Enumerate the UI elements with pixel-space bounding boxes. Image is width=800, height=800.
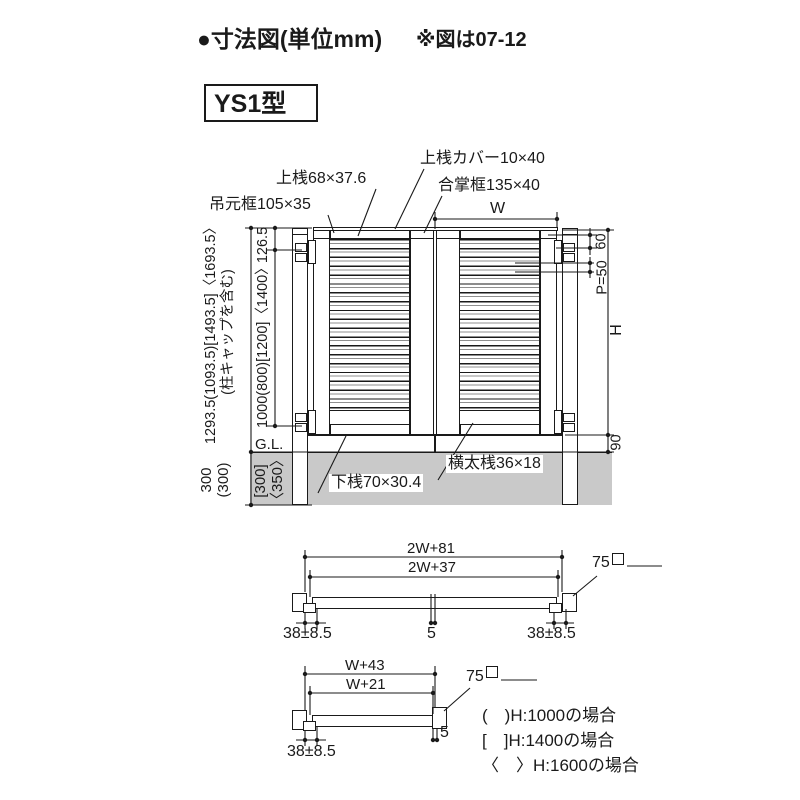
hinge-knuckle [563, 253, 575, 262]
right-post-cap-line [563, 234, 577, 235]
dim-louver-pitch: P=50 [595, 255, 610, 301]
figure-note: ※図は07-12 [416, 29, 527, 52]
left-cross-rail [330, 410, 409, 425]
hinge-plate [308, 410, 316, 434]
hinge-plate [308, 240, 316, 264]
hinge-knuckle [295, 413, 307, 422]
legend-item-h1400: [ ]H:1400の場合 [482, 731, 614, 751]
label-top-rail-cover: 上桟カバー10×40 [420, 150, 545, 168]
left-post [292, 228, 308, 505]
right-post [562, 228, 578, 505]
dim-plan-single-latch-gap: 5 [440, 724, 449, 742]
post-size-square-icon [612, 553, 624, 565]
dim-top-to-hinge: 60 [594, 229, 609, 255]
hinge-knuckle [563, 413, 575, 422]
hinge-knuckle [563, 423, 575, 432]
dim-plan-double-inner: 2W+37 [408, 559, 456, 576]
dim-plan-double-center-gap: 5 [427, 625, 436, 643]
left-leaf-meeting-stile-line [409, 231, 411, 434]
hinge-plate [554, 410, 562, 434]
dim-total-height: 1293.5(1093.5)[1493.5]〈1693.5〉 (柱キャップを含む… [203, 192, 245, 472]
label-bottom-rail: 下桟70×30.4 [329, 474, 423, 492]
hinge-knuckle [295, 423, 307, 432]
dim-embed-outer: 300 (300) [198, 457, 236, 503]
dim-total-height-value: 1293.5(1093.5)[1493.5]〈1693.5〉 [203, 192, 220, 472]
label-ground-line: G.L. [255, 436, 283, 453]
plan-single-panel [312, 715, 433, 727]
dim-hinge-span: 1000(800)[1200]〈1400〉 [255, 268, 271, 428]
label-meeting-stile: 合掌框135×40 [438, 177, 540, 195]
plan-double-panel [312, 597, 557, 609]
right-leaf-hinge-stile-line [539, 231, 541, 434]
label-plan-single-post-size: 75 [466, 668, 484, 686]
hinge-knuckle [295, 243, 307, 252]
label-cross-rail: 横太桟36×18 [446, 455, 543, 473]
legend-item-h1000: ( )H:1000の場合 [482, 706, 616, 726]
label-plan-double-post-size: 75 [592, 554, 610, 572]
dim-leaf-width: W [490, 200, 505, 218]
dim-embed-outer-value: 300 [198, 457, 215, 503]
right-cross-rail [460, 410, 539, 425]
plan-hinge-bracket [303, 603, 316, 613]
dim-embed-inner: [300] 〈350〉 [252, 455, 290, 507]
dim-plan-single-inner: W+21 [346, 676, 386, 693]
dim-ground-clearance: 90 [609, 430, 624, 456]
dim-plan-single-hinge-gap: 38±8.5 [287, 743, 336, 761]
model-name: YS1型 [214, 90, 286, 119]
label-top-rail: 上桟68×37.6 [276, 170, 366, 188]
dim-plan-double-right-gap: 38±8.5 [527, 625, 576, 643]
plan-hinge-bracket [303, 721, 316, 731]
center-drop-rod [434, 436, 436, 452]
hinge-plate [554, 240, 562, 264]
post-size-square-icon [486, 666, 498, 678]
dim-embed-outer-alt: (300) [215, 457, 232, 503]
page-title: ●寸法図(単位mm) [197, 26, 382, 52]
right-louver-panel [460, 239, 539, 411]
hinge-knuckle [563, 243, 575, 252]
dim-plan-double-overall: 2W+81 [407, 540, 455, 557]
hinge-knuckle [295, 253, 307, 262]
model-badge: YS1型 [204, 84, 318, 122]
dim-gate-height: H [608, 320, 624, 340]
dim-embed-inner-alt: 〈350〉 [269, 455, 286, 507]
left-louver-panel [330, 239, 409, 411]
plan-hinge-bracket [549, 603, 562, 613]
left-post-cap-line [293, 234, 307, 235]
dimension-drawing-page: ●寸法図(単位mm) ※図は07-12 YS1型 [0, 0, 800, 800]
dim-plan-single-overall: W+43 [345, 657, 385, 674]
dim-embed-inner-value: [300] [252, 455, 269, 507]
dim-total-height-note: (柱キャップを含む) [220, 192, 237, 472]
legend-item-h1600: 〈 〉H:1600の場合 [482, 756, 639, 776]
dim-plan-double-left-gap: 38±8.5 [283, 625, 332, 643]
plan-double-right-post [562, 593, 577, 612]
